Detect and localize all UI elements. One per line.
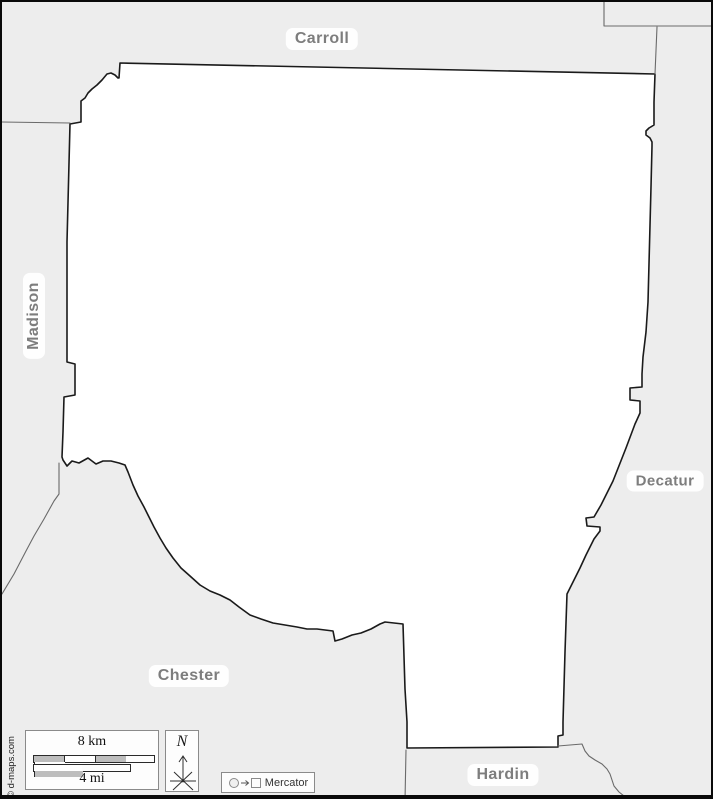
credit-text: © d-maps.com xyxy=(6,716,17,798)
region-label-carroll: Carroll xyxy=(286,28,358,50)
north-arrow-icon xyxy=(166,751,200,791)
credit-watermark: © d-maps.com xyxy=(6,716,20,798)
map-canvas: Carroll Madison Decatur Chester Hardin 8… xyxy=(0,0,713,799)
globe-circle-icon xyxy=(229,778,238,787)
arrow-right-icon xyxy=(241,780,249,785)
scale-bar-km xyxy=(33,755,155,763)
scale-segment xyxy=(64,756,95,762)
region-label-madison: Madison xyxy=(23,273,45,359)
region-label-chester: Chester xyxy=(149,665,229,687)
county-map-graphic xyxy=(2,2,713,799)
region-label-hardin: Hardin xyxy=(467,764,538,786)
north-letter: N xyxy=(166,733,198,751)
projection-legend: Mercator xyxy=(221,772,315,793)
projection-name: Mercator xyxy=(265,777,308,789)
scale-segment xyxy=(95,756,126,762)
region-label-decatur: Decatur xyxy=(627,471,704,492)
projection-glyphs xyxy=(228,777,262,789)
scale-km-label: 8 km xyxy=(26,734,158,750)
flat-map-square-icon xyxy=(251,778,260,787)
scale-bar: 8 km 4 mi xyxy=(25,730,159,790)
scale-mi-label: 4 mi xyxy=(26,771,158,787)
north-indicator: N xyxy=(165,730,199,792)
